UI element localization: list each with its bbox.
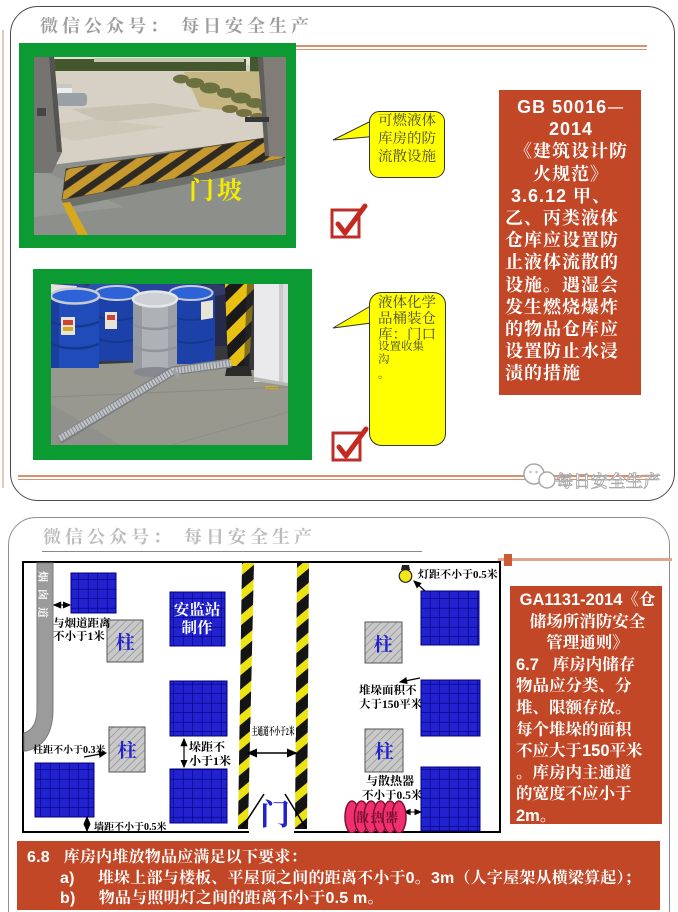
svg-text:门坡: 门坡 (189, 171, 245, 207)
svg-text:墙距不小于0.5米: 墙距不小于0.5米 (94, 818, 167, 833)
svg-text:小于1米: 小于1米 (189, 752, 231, 769)
svg-text:门: 门 (260, 790, 290, 833)
svg-text:柱: 柱 (115, 628, 134, 655)
svg-text:大于150平米: 大于150平米 (359, 696, 423, 712)
svg-text:柱距不小于0.3米: 柱距不小于0.3米 (33, 741, 106, 756)
svg-text:柱: 柱 (117, 736, 136, 763)
svg-text:主通道不小于2米: 主通道不小于2米 (252, 722, 295, 738)
svg-text:灯距不小于0.5米: 灯距不小于0.5米 (418, 566, 498, 582)
svg-text:散热器: 散热器 (356, 807, 400, 826)
svg-text:烟囱道: 烟囱道 (35, 571, 51, 625)
svg-text:柱: 柱 (374, 737, 393, 764)
svg-text:制作: 制作 (181, 616, 213, 638)
svg-text:不小于1米: 不小于1米 (53, 628, 105, 644)
svg-text:柱: 柱 (373, 630, 392, 657)
